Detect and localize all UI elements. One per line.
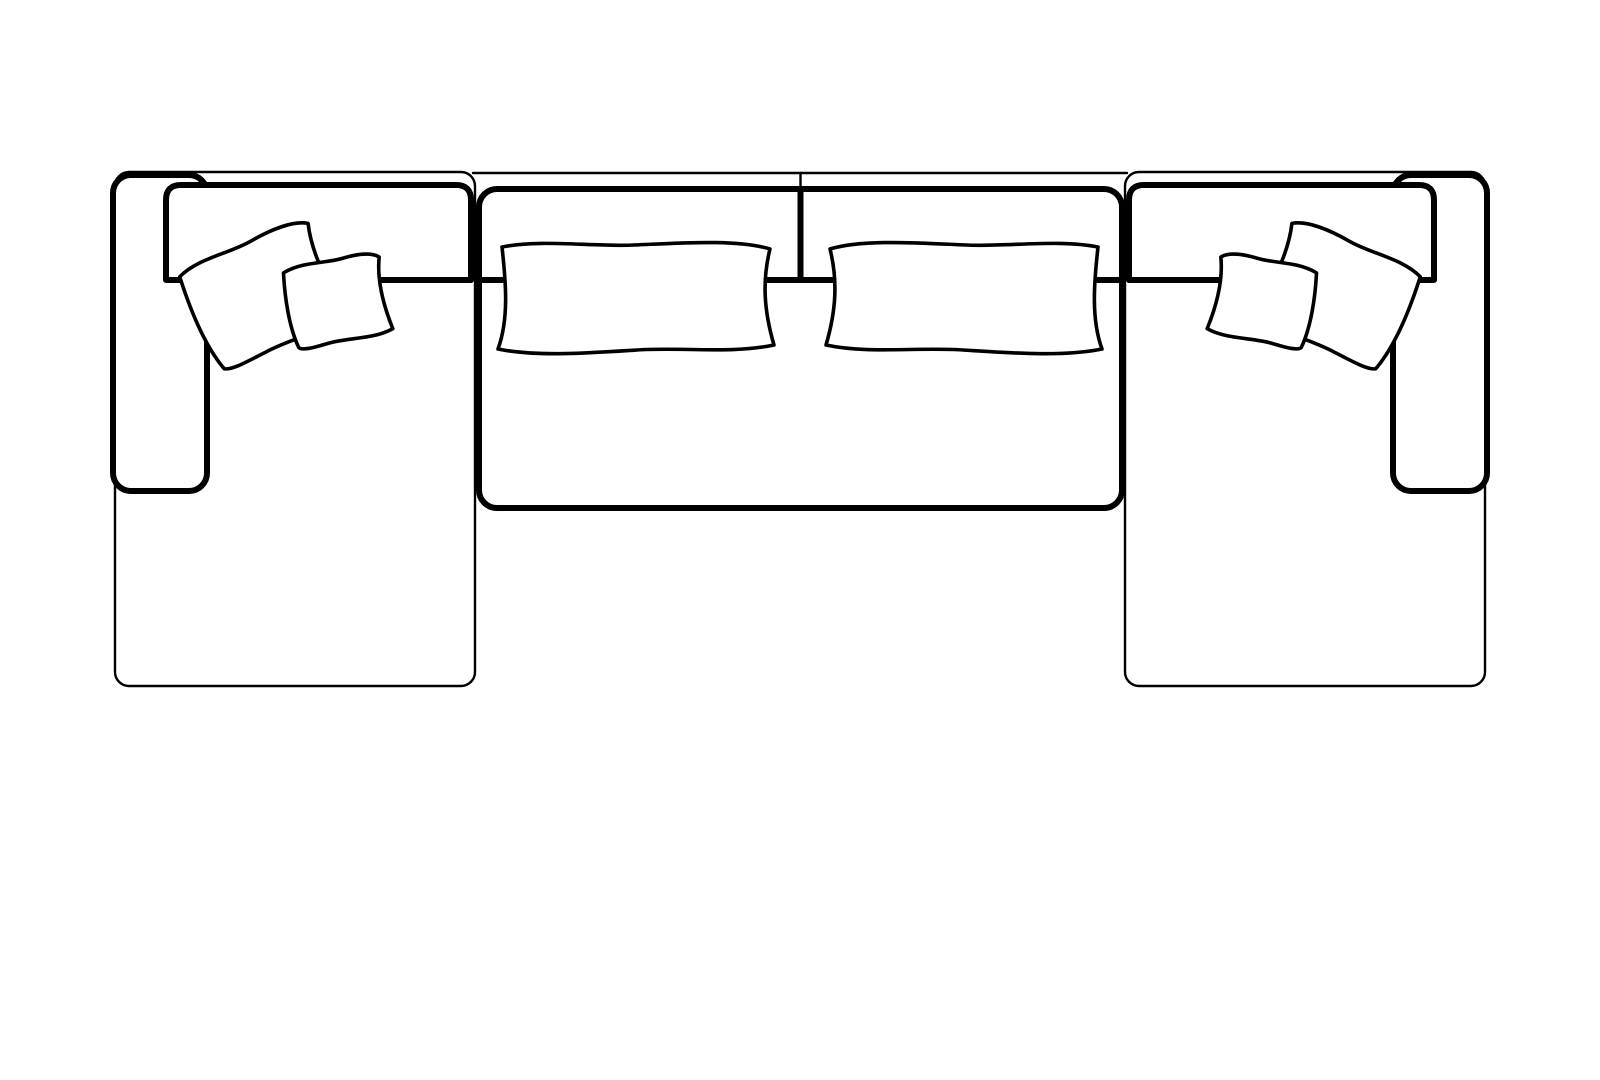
- sectional-sofa-diagram: [0, 0, 1600, 1080]
- lumbar-pillow-right-outline: [826, 243, 1102, 354]
- right-throw-pillow-small: [1206, 251, 1319, 351]
- lumbar-pillow-left-outline: [498, 243, 774, 354]
- lumbar-pillow-right: [826, 243, 1102, 354]
- left-throw-pillow-small-outline: [280, 251, 393, 351]
- canvas: [0, 0, 1600, 1080]
- page-background: { "drawing": { "description": "Top-down …: [0, 0, 1600, 1080]
- lumbar-pillow-left: [498, 243, 774, 354]
- left-throw-pillow-small: [280, 251, 393, 351]
- right-throw-pillow-small-outline: [1206, 251, 1319, 351]
